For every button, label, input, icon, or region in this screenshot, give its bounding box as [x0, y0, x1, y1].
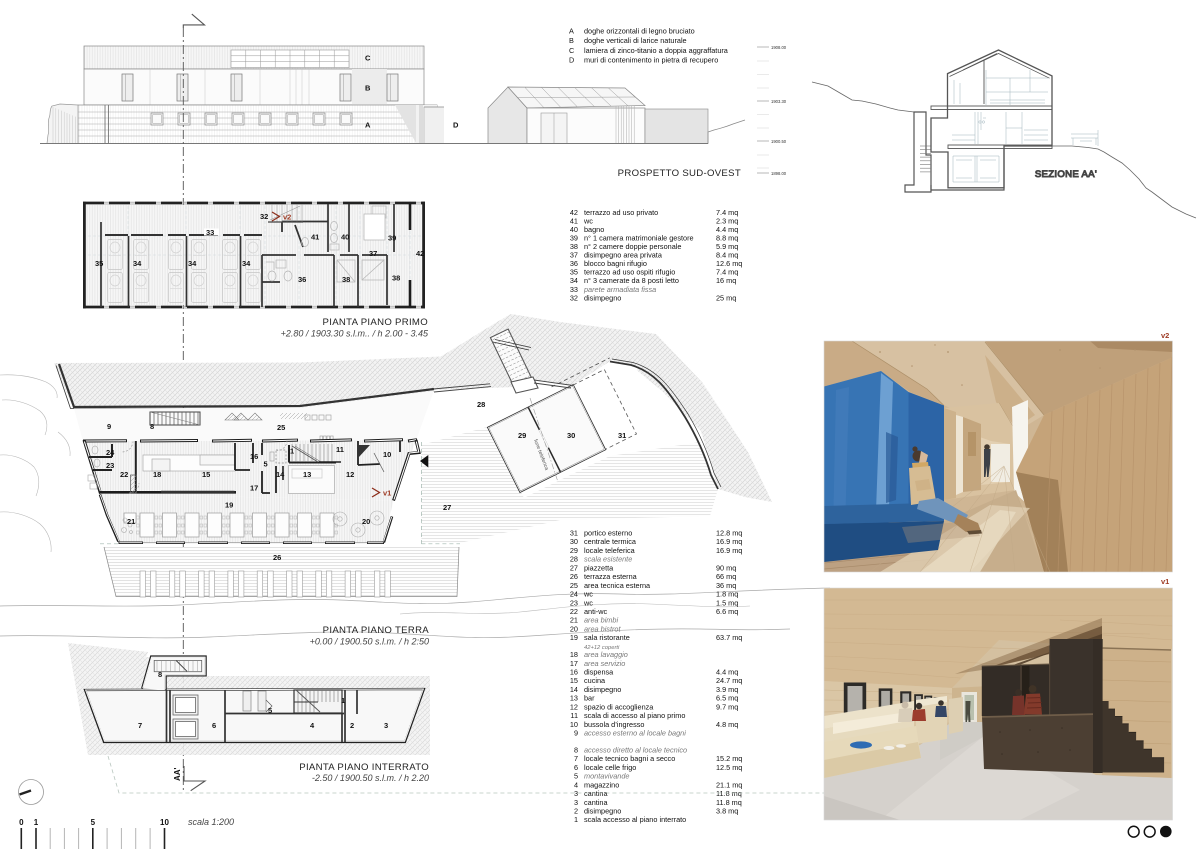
svg-text:1908.00: 1908.00 [771, 45, 787, 50]
svg-text:A: A [365, 121, 371, 130]
svg-text:16: 16 [570, 668, 578, 677]
svg-text:11: 11 [336, 445, 344, 454]
svg-text:30: 30 [567, 431, 575, 440]
svg-text:21: 21 [570, 616, 578, 625]
svg-text:4.4 mq: 4.4 mq [716, 668, 738, 677]
svg-text:portico esterno: portico esterno [584, 529, 632, 538]
svg-text:1900.50: 1900.50 [771, 139, 787, 144]
svg-text:3: 3 [384, 721, 388, 730]
svg-text:16: 16 [250, 452, 258, 461]
svg-text:disimpegno: disimpegno [584, 807, 621, 816]
svg-text:5: 5 [91, 818, 96, 827]
svg-text:area servizio: area servizio [584, 659, 625, 668]
svg-text:spazio di accoglienza: spazio di accoglienza [584, 702, 654, 711]
svg-text:32: 32 [570, 293, 578, 302]
svg-text:C: C [569, 46, 574, 55]
svg-text:26: 26 [570, 572, 578, 581]
svg-text:23: 23 [570, 598, 578, 607]
svg-text:63.7 mq: 63.7 mq [716, 633, 742, 642]
svg-text:24.7 mq: 24.7 mq [716, 676, 742, 685]
svg-text:doghe verticali di larice natu: doghe verticali di larice naturale [584, 36, 687, 45]
svg-text:area bistrot: area bistrot [584, 624, 621, 633]
svg-text:4: 4 [574, 780, 578, 789]
svg-text:5: 5 [574, 772, 578, 781]
svg-text:29: 29 [570, 546, 578, 555]
svg-text:A: A [569, 27, 574, 36]
svg-text:muri di contenimento in pietra: muri di contenimento in pietra di recupe… [584, 56, 718, 65]
svg-text:20: 20 [570, 624, 578, 633]
svg-text:10: 10 [160, 818, 169, 827]
svg-text:accesso diretto al locale tecn: accesso diretto al locale tecnico [584, 746, 687, 755]
svg-text:3: 3 [574, 798, 578, 807]
svg-text:scala esistente: scala esistente [584, 555, 632, 564]
svg-text:32: 32 [260, 212, 268, 221]
svg-text:cantina: cantina [584, 798, 608, 807]
svg-text:1.5 mq: 1.5 mq [716, 598, 738, 607]
svg-text:1903.30: 1903.30 [771, 99, 787, 104]
svg-text:3.8 mq: 3.8 mq [716, 807, 738, 816]
svg-text:area lavaggio: area lavaggio [584, 650, 628, 659]
svg-text:24: 24 [106, 448, 115, 457]
svg-text:B: B [365, 84, 371, 93]
svg-text:3.9 mq: 3.9 mq [716, 685, 738, 694]
svg-text:1.8 mq: 1.8 mq [716, 590, 738, 599]
svg-text:6: 6 [574, 763, 578, 772]
svg-text:21.1 mq: 21.1 mq [716, 780, 742, 789]
svg-text:5: 5 [268, 706, 272, 715]
svg-text:8: 8 [150, 422, 154, 431]
svg-text:11: 11 [570, 711, 578, 720]
svg-text:15: 15 [570, 676, 578, 685]
svg-text:42: 42 [416, 249, 424, 258]
svg-text:22: 22 [120, 470, 128, 479]
svg-text:scala accesso al piano interra: scala accesso al piano interrato [584, 815, 686, 824]
svg-text:5: 5 [264, 460, 268, 469]
svg-text:33: 33 [206, 228, 214, 237]
svg-text:37: 37 [369, 249, 377, 258]
svg-text:locale celle frigo: locale celle frigo [584, 763, 636, 772]
svg-text:magazzino: magazzino [584, 780, 619, 789]
svg-text:scala di accesso al piano prim: scala di accesso al piano primo [584, 711, 685, 720]
svg-text:11.8 mq: 11.8 mq [716, 798, 742, 807]
svg-text:13: 13 [570, 694, 578, 703]
svg-text:40: 40 [341, 233, 349, 242]
svg-text:29: 29 [518, 431, 526, 440]
svg-text:v1: v1 [1161, 577, 1169, 586]
svg-text:16 mq: 16 mq [716, 276, 736, 285]
svg-text:21: 21 [127, 517, 135, 526]
svg-text:18: 18 [570, 650, 578, 659]
svg-text:terrazza esterna: terrazza esterna [584, 572, 638, 581]
svg-text:6.5 mq: 6.5 mq [716, 694, 738, 703]
svg-text:27: 27 [570, 563, 578, 572]
svg-text:1: 1 [34, 818, 39, 827]
svg-text:locale tecnico bagni a secco: locale tecnico bagni a secco [584, 754, 675, 763]
svg-text:38: 38 [342, 275, 350, 284]
svg-text:PIANTA PIANO TERRA: PIANTA PIANO TERRA [323, 625, 430, 636]
svg-text:wc: wc [583, 598, 593, 607]
svg-text:11.8 mq: 11.8 mq [716, 789, 742, 798]
svg-text:10: 10 [383, 450, 391, 459]
svg-text:9.7 mq: 9.7 mq [716, 702, 738, 711]
svg-text:+2.80 / 1903.30 s.l.m.. / h 2: +2.80 / 1903.30 s.l.m.. / h 2.00 - 3.45 [281, 329, 429, 339]
svg-text:AA': AA' [173, 767, 182, 781]
svg-text:31: 31 [570, 529, 578, 538]
svg-text:-2.50 / 1900.50 s.l.m. / h 2.: -2.50 / 1900.50 s.l.m. / h 2.20 [312, 773, 429, 783]
svg-text:dispensa: dispensa [584, 668, 614, 677]
svg-text:B: B [569, 36, 574, 45]
svg-text:wc: wc [583, 590, 593, 599]
svg-text:6.6 mq: 6.6 mq [716, 607, 738, 616]
svg-text:area tecnica esterna: area tecnica esterna [584, 581, 651, 590]
svg-text:34: 34 [242, 259, 251, 268]
svg-text:montavivande: montavivande [584, 772, 629, 781]
svg-text:bussola d’ingresso: bussola d’ingresso [584, 720, 644, 729]
svg-text:locale teleferica: locale teleferica [584, 546, 636, 555]
svg-text:doghe orizzontali di legno br: doghe orizzontali di legno bruciato [584, 27, 695, 36]
svg-text:10: 10 [570, 720, 578, 729]
svg-text:anti-wc: anti-wc [584, 607, 607, 616]
svg-text:14: 14 [570, 685, 578, 694]
svg-text:16.9 mq: 16.9 mq [716, 546, 742, 555]
svg-text:8: 8 [158, 670, 162, 679]
svg-text:0: 0 [19, 818, 24, 827]
svg-text:2: 2 [574, 807, 578, 816]
svg-text:2: 2 [350, 721, 354, 730]
svg-text:9: 9 [107, 422, 111, 431]
svg-text:15: 15 [202, 470, 210, 479]
svg-text:30: 30 [570, 537, 578, 546]
svg-text:24: 24 [570, 590, 578, 599]
svg-text:4.8 mq: 4.8 mq [716, 720, 738, 729]
svg-text:9: 9 [574, 729, 578, 738]
svg-text:lamiera di zinco-titanio a dop: lamiera di zinco-titanio a doppia aggraf… [584, 46, 729, 55]
svg-text:1: 1 [574, 815, 578, 824]
svg-text:34: 34 [188, 259, 197, 268]
svg-text:17: 17 [570, 659, 578, 668]
svg-text:PIANTA PIANO INTERRATO: PIANTA PIANO INTERRATO [299, 762, 429, 773]
svg-text:22: 22 [570, 607, 578, 616]
svg-text:36 mq: 36 mq [716, 581, 736, 590]
svg-text:1: 1 [290, 447, 294, 456]
svg-text:area bimbi: area bimbi [584, 616, 618, 625]
svg-text:7: 7 [138, 721, 142, 730]
svg-text:piazzetta: piazzetta [584, 563, 614, 572]
svg-text:19: 19 [225, 501, 233, 510]
svg-text:accesso esterno al locale bagn: accesso esterno al locale bagni [584, 729, 686, 738]
svg-text:26: 26 [273, 553, 281, 562]
svg-text:17: 17 [250, 484, 258, 493]
svg-text:15.2 mq: 15.2 mq [716, 754, 742, 763]
svg-text:25: 25 [277, 423, 285, 432]
svg-text:12.8 mq: 12.8 mq [716, 529, 742, 538]
svg-text:v2: v2 [1161, 331, 1169, 340]
svg-text:20: 20 [362, 517, 370, 526]
svg-text:PROSPETTO SUD-OVEST: PROSPETTO SUD-OVEST [618, 168, 741, 179]
svg-text:12.5 mq: 12.5 mq [716, 763, 742, 772]
svg-text:12: 12 [570, 702, 578, 711]
svg-text:cantina: cantina [584, 789, 608, 798]
svg-text:centrale termica: centrale termica [584, 537, 637, 546]
svg-text:C: C [365, 54, 371, 63]
svg-text:16.9 mq: 16.9 mq [716, 537, 742, 546]
svg-text:18: 18 [153, 470, 161, 479]
svg-text:PIANTA PIANO PRIMO: PIANTA PIANO PRIMO [323, 317, 428, 328]
svg-text:12: 12 [346, 470, 354, 479]
svg-text:41: 41 [311, 233, 319, 242]
svg-text:14: 14 [276, 470, 285, 479]
svg-text:cucina: cucina [584, 676, 606, 685]
svg-text:SEZIONE AA': SEZIONE AA' [1035, 169, 1097, 180]
svg-text:35: 35 [95, 259, 103, 268]
svg-text:disimpegno: disimpegno [584, 685, 621, 694]
svg-text:34: 34 [133, 259, 142, 268]
svg-text:90 mq: 90 mq [716, 563, 736, 572]
svg-text:bar: bar [584, 694, 595, 703]
svg-text:25 mq: 25 mq [716, 293, 736, 302]
svg-text:terrazzo ad uso privato: terrazzo ad uso privato [584, 208, 658, 217]
svg-text:disimpegno: disimpegno [584, 293, 621, 302]
svg-text:6: 6 [212, 721, 216, 730]
svg-text:28: 28 [570, 555, 578, 564]
svg-text:66 mq: 66 mq [716, 572, 736, 581]
svg-text:19: 19 [570, 633, 578, 642]
svg-text:38: 38 [392, 274, 400, 283]
svg-text:+0.00 / 1900.50 s.l.m. / h 2:: +0.00 / 1900.50 s.l.m. / h 2:50 [310, 637, 429, 647]
svg-text:v2: v2 [283, 213, 291, 222]
svg-text:1898.00: 1898.00 [771, 171, 787, 176]
svg-text:scala 1:200: scala 1:200 [188, 817, 234, 827]
svg-text:v1: v1 [383, 489, 391, 498]
svg-text:3: 3 [574, 789, 578, 798]
svg-text:39: 39 [388, 234, 396, 243]
svg-text:D: D [453, 121, 459, 130]
svg-text:sala ristorante: sala ristorante [584, 633, 630, 642]
svg-text:D: D [569, 56, 574, 65]
svg-text:27: 27 [443, 503, 451, 512]
svg-text:1: 1 [341, 696, 345, 705]
svg-text:8: 8 [574, 746, 578, 755]
svg-text:7: 7 [574, 754, 578, 763]
svg-text:36: 36 [298, 275, 306, 284]
svg-text:31: 31 [618, 431, 626, 440]
svg-text:25: 25 [570, 581, 578, 590]
svg-text:28: 28 [477, 400, 485, 409]
svg-text:13: 13 [303, 470, 311, 479]
svg-text:23: 23 [106, 461, 114, 470]
